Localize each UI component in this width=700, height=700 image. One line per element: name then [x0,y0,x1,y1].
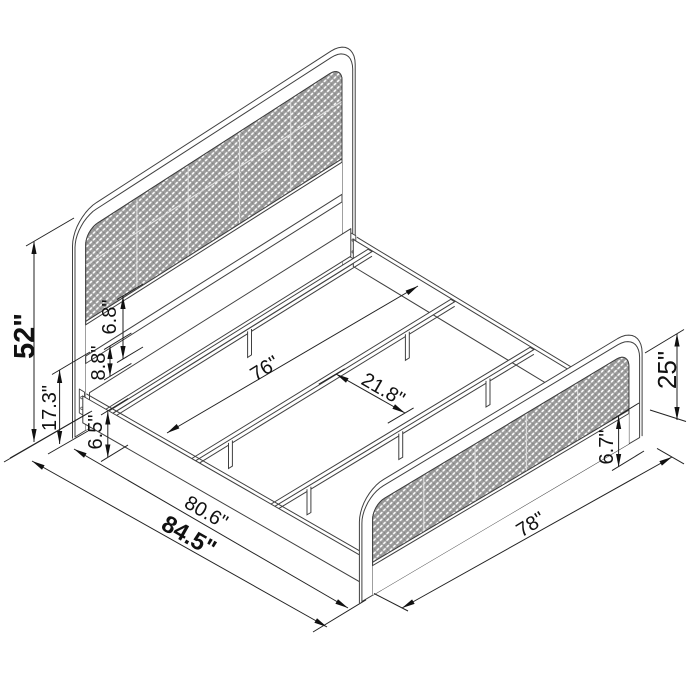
svg-text:25": 25" [652,351,682,389]
svg-text:17.3": 17.3" [39,385,61,431]
svg-text:6.7": 6.7" [596,430,618,465]
svg-text:52": 52" [9,313,41,359]
svg-text:8.8": 8.8" [88,346,110,381]
svg-text:6.8": 6.8" [99,300,121,335]
svg-text:6.5": 6.5" [85,415,107,450]
